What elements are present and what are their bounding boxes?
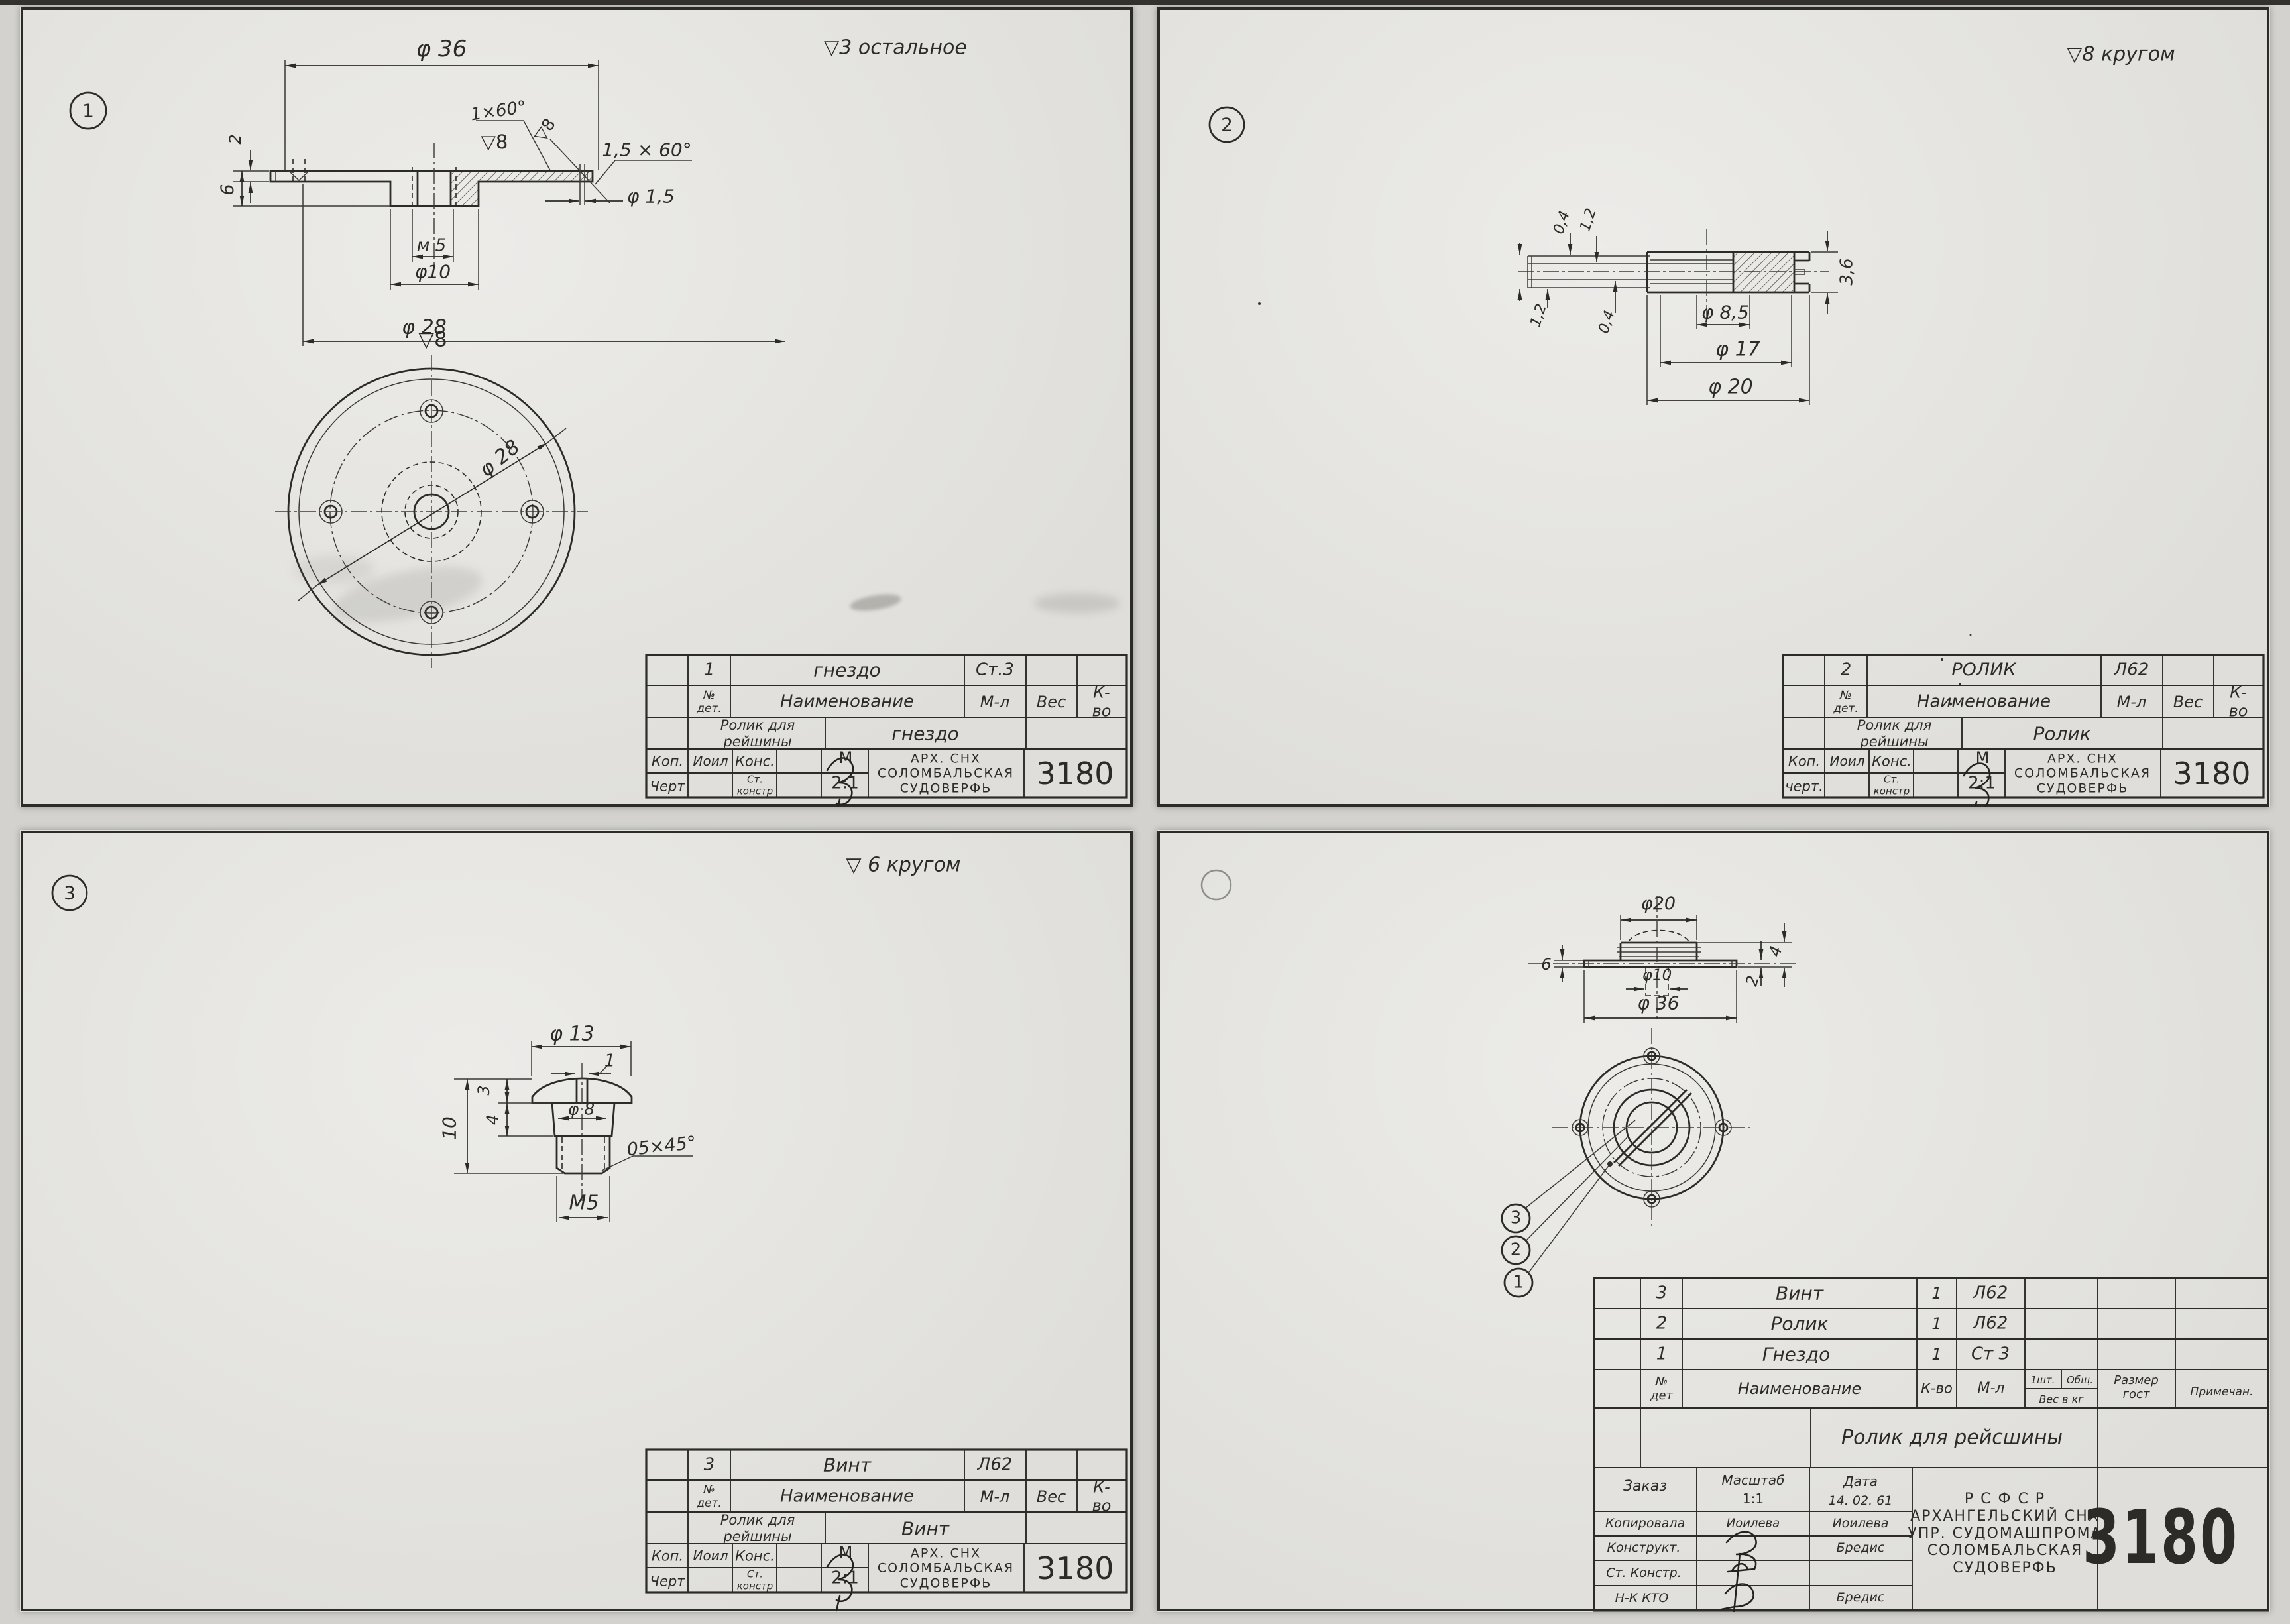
plist-h-prim: Примечан. bbox=[2191, 1385, 2254, 1399]
dim-thickness-2: 2 bbox=[226, 134, 245, 144]
tb-drawing-number: 3180 bbox=[2173, 756, 2250, 791]
tb-kop-label: Коп. bbox=[1788, 754, 1820, 770]
plist-h-mat: М-л bbox=[1978, 1380, 2005, 1397]
balloon-2-number: 2 bbox=[1511, 1240, 1522, 1261]
dim-phi20: φ20 bbox=[1641, 894, 1676, 915]
plist-row3-no: 1 bbox=[1656, 1344, 1668, 1365]
bb-st-konstr: Ст. Констр. bbox=[1606, 1566, 1682, 1580]
tb-chert-label: Черт bbox=[650, 779, 685, 795]
tb-kop-signature: Иоил bbox=[1830, 754, 1865, 770]
tb-assembly-name: Ролик для рейшины bbox=[720, 1512, 795, 1545]
tb-kop-label: Коп. bbox=[652, 754, 683, 770]
tb-qty-header: К-во bbox=[2222, 683, 2254, 721]
plist-h-ves: Вес в кг bbox=[2039, 1394, 2083, 1407]
balloon-1-number: 1 bbox=[1513, 1273, 1524, 1293]
bb-konstr-name: Бредис bbox=[1837, 1540, 1885, 1555]
dim-phi13: φ 13 bbox=[549, 1022, 595, 1045]
tb-drawing-number: 3180 bbox=[1036, 1550, 1114, 1586]
tb-org: АРХ. СНХ СОЛОМБАЛЬСКАЯ СУДОВЕРФЬ bbox=[2014, 751, 2151, 795]
tb-org: АРХ. СНХ СОЛОМБАЛЬСКАЯ СУДОВЕРФЬ bbox=[878, 751, 1014, 795]
tb-detno-header: № дет. bbox=[1833, 689, 1859, 715]
tb-chert-label: Черт bbox=[650, 1574, 685, 1590]
dim-12-top: 1,2 bbox=[1577, 206, 1600, 233]
plist-row2-qty: 1 bbox=[1931, 1314, 1941, 1333]
plist-row3-name: Гнездо bbox=[1762, 1343, 1831, 1365]
dim-3-6: 3,6 bbox=[1837, 258, 1858, 285]
plist-row2-name: Ролик bbox=[1770, 1312, 1828, 1334]
tb-qty-header: К-во bbox=[1086, 683, 1117, 721]
sheet-part2-rolik: 2▽8 кругом0,41,21,20,43,6φ 8,5φ 17φ 202Р… bbox=[1157, 7, 2270, 807]
tb-weight-header: Вес bbox=[1037, 1487, 1066, 1506]
dim-slot-1: 1 bbox=[604, 1051, 616, 1072]
tb-name-header: Наименование bbox=[780, 692, 914, 713]
sheet-part3-vint: 3▽ 6 кругомφ 1313410φ 805×45°М53ВинтЛ62№… bbox=[20, 830, 1133, 1612]
dim-phi28-plan: φ 28 bbox=[475, 435, 525, 482]
dim-phi10: φ10 bbox=[1642, 966, 1672, 984]
bb-org: Р С Ф С Р АРХАНГЕЛЬСКИЙ СНХ УПР. СУДОМАШ… bbox=[1908, 1491, 2102, 1577]
bb-nk-kto: Н-К КТО bbox=[1615, 1591, 1669, 1605]
bb-date: 14. 02. 61 bbox=[1829, 1493, 1893, 1508]
tb-det-no: 1 bbox=[704, 660, 715, 681]
tb-chert-label: черт. bbox=[1785, 779, 1823, 795]
sheet-part1-gnezdo: 1▽3 остальноеφ 361×60°▽8▽81,5 × 60°φ 1,5… bbox=[20, 7, 1133, 807]
tb-kons-label: Конс. bbox=[1872, 754, 1912, 770]
finish-note-all: ▽8 кругом bbox=[2067, 42, 2175, 66]
tb-assembly-name: Ролик для рейшины bbox=[720, 717, 795, 750]
tb-drawing-number: 3180 bbox=[1036, 756, 1114, 791]
tb-weight-header: Вес bbox=[1037, 693, 1066, 711]
tb-st-konstr-label: Ст. констр bbox=[737, 774, 773, 797]
dim-04-bottom: 0,4 bbox=[1595, 308, 1619, 335]
tb-det-no: 3 bbox=[704, 1455, 715, 1476]
plist-h-no: № дет bbox=[1650, 1375, 1673, 1403]
plist-h-name: Наименование bbox=[1738, 1379, 1862, 1398]
scanned-drawing-page: 1▽3 остальноеφ 361×60°▽8▽81,5 × 60°φ 1,5… bbox=[0, 0, 2290, 1624]
tb-material: Л62 bbox=[2114, 660, 2149, 681]
dim-phi8-5: φ 8,5 bbox=[1701, 301, 1749, 323]
tb-part-name: РОЛИК bbox=[1951, 660, 2016, 681]
tb-scale-m: М bbox=[839, 1543, 853, 1562]
plist-row1-qty: 1 bbox=[1931, 1284, 1941, 1303]
chamfer-note-15x60: 1,5 × 60° bbox=[602, 139, 691, 160]
balloon-2-number: 2 bbox=[1221, 113, 1233, 135]
plist-row1-name: Винт bbox=[1776, 1282, 1823, 1304]
dim-m5: м 5 bbox=[417, 236, 446, 257]
tb-qty-header: К-во bbox=[1086, 1478, 1117, 1516]
plist-row3-mat: Ст 3 bbox=[1971, 1344, 2010, 1365]
plist-row2-mat: Л62 bbox=[1973, 1314, 2008, 1334]
tb-scale-m: М bbox=[1976, 748, 1990, 767]
bb-kop-name: Иоилева bbox=[1833, 1516, 1889, 1531]
dim-phi20: φ 20 bbox=[1708, 375, 1753, 398]
bb-zakaz: Заказ bbox=[1623, 1478, 1667, 1495]
tb-mat-header: М-л bbox=[980, 1487, 1010, 1506]
tb-assembly-name: Ролик для рейшины bbox=[1857, 717, 1932, 750]
dim-phi17: φ 17 bbox=[1715, 337, 1760, 361]
plist-row1-no: 3 bbox=[1656, 1283, 1668, 1304]
tb-part-name: гнездо bbox=[813, 659, 881, 681]
chamfer-note-05x45: 05×45° bbox=[626, 1133, 697, 1161]
balloon-1-number: 1 bbox=[82, 99, 94, 121]
tb-part-name: Винт bbox=[823, 1454, 871, 1476]
dim-4: 4 bbox=[483, 1114, 502, 1125]
dim-m5: М5 bbox=[569, 1191, 599, 1214]
bb-konstrukt: Конструкт. bbox=[1607, 1540, 1681, 1555]
dim-4: 4 bbox=[1765, 944, 1786, 958]
tb-st-konstr-label: Ст. констр bbox=[1874, 774, 1910, 797]
tb-mat-header: М-л bbox=[980, 693, 1010, 711]
dim-phi1-5: φ 1,5 bbox=[627, 185, 675, 207]
dim-12-bottom: 1,2 bbox=[1527, 302, 1550, 329]
finish-mark-v8-plan: ▽8 bbox=[418, 328, 447, 353]
tb-scale-value: 2:1 bbox=[831, 1568, 859, 1589]
tb-weight-header: Вес bbox=[2173, 693, 2203, 711]
tb-part-name-2: гнездо bbox=[891, 723, 959, 744]
dim-phi36: φ 36 bbox=[1638, 992, 1680, 1014]
dim-phi36: φ 36 bbox=[416, 36, 467, 62]
tb-scale-m: М bbox=[839, 748, 853, 767]
plist-row1-mat: Л62 bbox=[1973, 1283, 2008, 1304]
balloon-3-number: 3 bbox=[64, 882, 76, 903]
assembly-title: Ролик для рейсшины bbox=[1841, 1426, 2063, 1449]
bb-kop-signature: Иоилева bbox=[1727, 1516, 1780, 1530]
plist-h-qty: К-во bbox=[1921, 1381, 1953, 1397]
dim-6: 6 bbox=[1541, 955, 1551, 974]
tb-material: Л62 bbox=[978, 1455, 1013, 1476]
tb-kop-label: Коп. bbox=[652, 1548, 683, 1565]
dim-04-top: 0,4 bbox=[1550, 209, 1574, 236]
tb-name-header: Наименование bbox=[1917, 692, 2051, 713]
tb-kop-signature: Иоил bbox=[693, 1548, 728, 1564]
tb-mat-header: М-л bbox=[2117, 693, 2147, 711]
balloon-3-number: 3 bbox=[1511, 1208, 1522, 1229]
tb-det-no: 2 bbox=[1841, 660, 1852, 681]
finish-mark-v8-section: ▽8 bbox=[481, 131, 508, 153]
tb-kons-label: Конс. bbox=[735, 754, 775, 770]
finish-note-all: ▽ 6 кругом bbox=[846, 853, 961, 876]
tb-part-name-2: Ролик bbox=[2033, 723, 2090, 744]
chamfer-note-1x60: 1×60° bbox=[469, 97, 528, 125]
tb-kop-signature: Иоил bbox=[693, 754, 728, 770]
tb-scale-value: 2:1 bbox=[1968, 774, 1996, 794]
dim-phi10: φ10 bbox=[415, 261, 451, 282]
tb-detno-header: № дет. bbox=[697, 689, 722, 715]
bb-data-label: Дата bbox=[1843, 1474, 1878, 1490]
tb-name-header: Наименование bbox=[780, 1487, 914, 1507]
finish-mark-v8-edge: ▽8 bbox=[530, 115, 559, 145]
dim-phi8: φ 8 bbox=[568, 1099, 595, 1119]
plist-h-razmer: Размер гост bbox=[2114, 1373, 2159, 1401]
tb-scale-value: 2:1 bbox=[831, 774, 859, 794]
plist-row2-no: 2 bbox=[1656, 1314, 1668, 1334]
finish-note-rest: ▽3 остальное bbox=[824, 36, 967, 59]
bb-nk-name: Бредис bbox=[1837, 1590, 1885, 1605]
dim-height-6: 6 bbox=[217, 184, 239, 195]
plist-row3-qty: 1 bbox=[1931, 1345, 1941, 1363]
dim-10: 10 bbox=[438, 1116, 460, 1140]
tb-part-name-2: Винт bbox=[901, 1517, 949, 1539]
plist-h-1sht: 1шт. bbox=[2031, 1375, 2055, 1387]
tb-material: Ст.3 bbox=[976, 660, 1014, 681]
dim-2: 2 bbox=[1742, 974, 1762, 988]
dim-head-3: 3 bbox=[475, 1085, 493, 1095]
tb-st-konstr-label: Ст. констр bbox=[737, 1568, 773, 1592]
bb-drawing-number: 3180 bbox=[2083, 1494, 2239, 1582]
plist-h-obsh: Общ. bbox=[2067, 1375, 2093, 1387]
tb-kons-label: Конс. bbox=[735, 1548, 775, 1565]
sheet-assembly: φ206φ10φ 36423213Винт1Л622Ролик1Л621Гнез… bbox=[1157, 830, 2270, 1612]
bb-masshtab: Масштаб bbox=[1721, 1473, 1784, 1489]
tb-org: АРХ. СНХ СОЛОМБАЛЬСКАЯ СУДОВЕРФЬ bbox=[878, 1546, 1014, 1590]
tb-detno-header: № дет. bbox=[697, 1483, 722, 1510]
bb-kopirovala: Копировала bbox=[1605, 1516, 1685, 1531]
scan-edge bbox=[0, 0, 2290, 5]
bb-scale: 1:1 bbox=[1743, 1491, 1764, 1507]
